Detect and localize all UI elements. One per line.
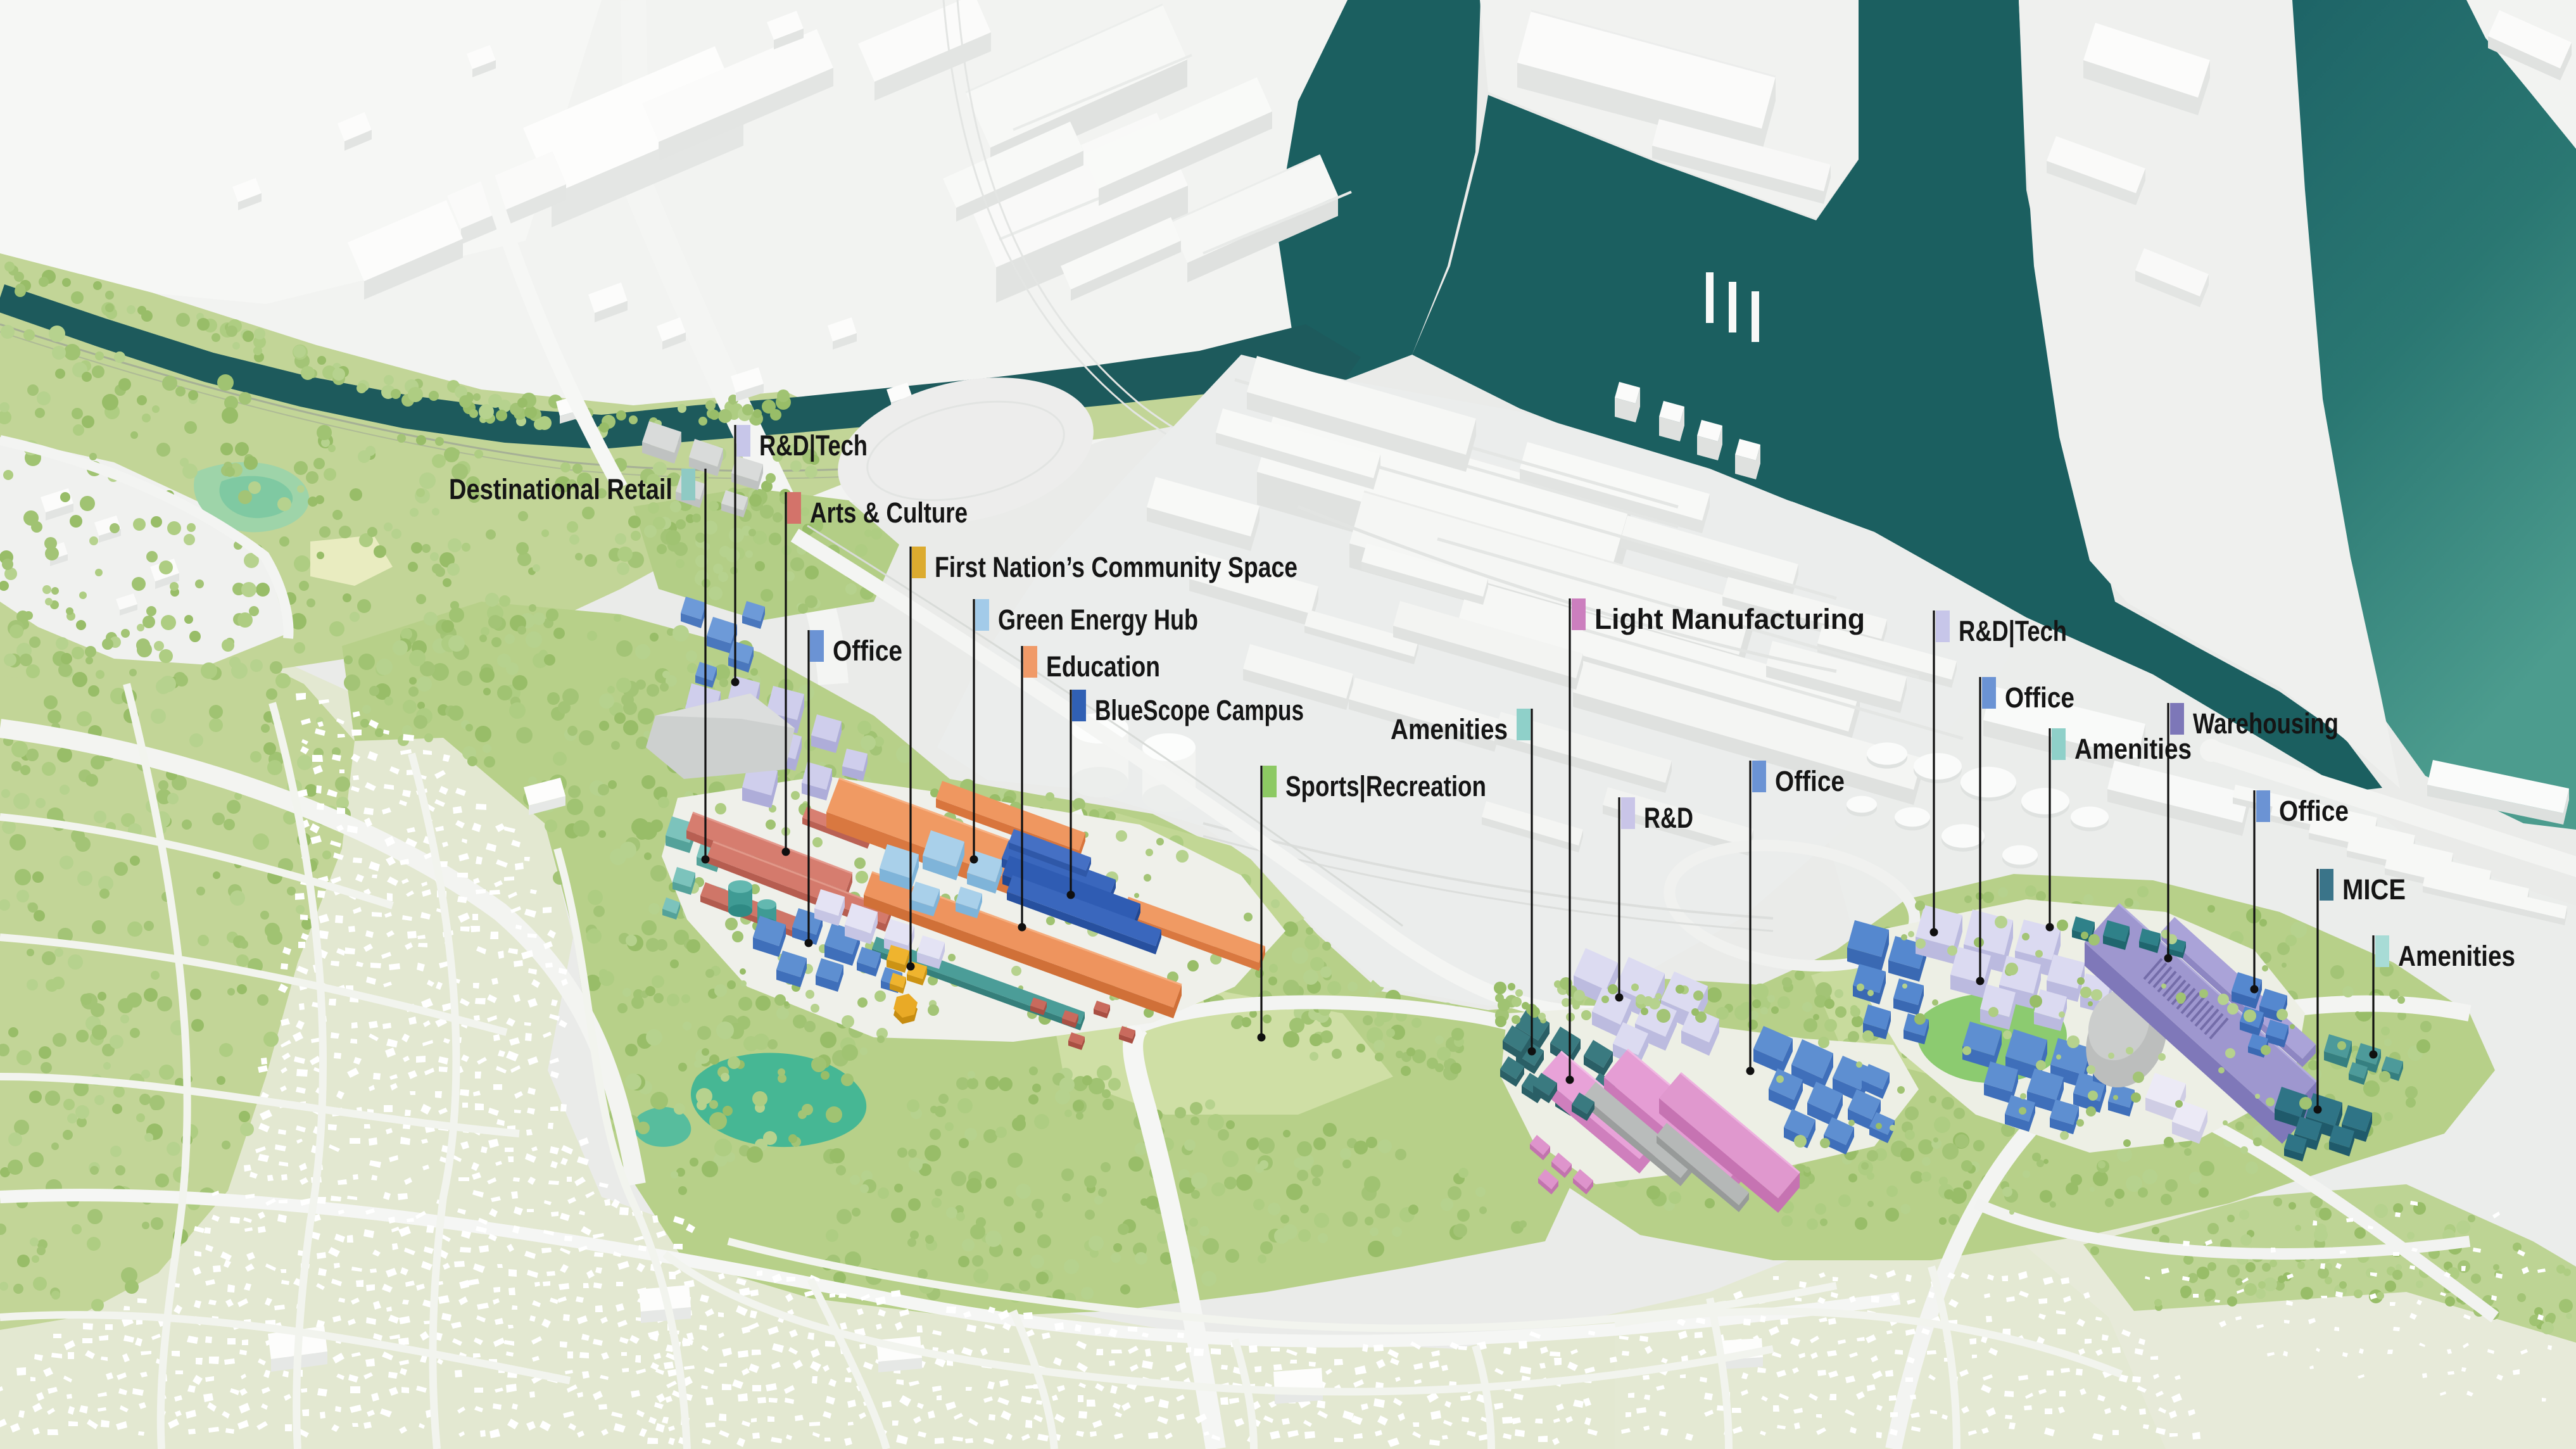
svg-text:Amenities: Amenities	[1391, 713, 1508, 745]
svg-text:Warehousing: Warehousing	[2193, 707, 2339, 740]
svg-text:Destinational Retail: Destinational Retail	[449, 473, 672, 505]
svg-text:Amenities: Amenities	[2398, 940, 2515, 972]
svg-text:R&D|Tech: R&D|Tech	[759, 429, 868, 462]
svg-text:Arts & Culture: Arts & Culture	[810, 497, 968, 529]
svg-text:MICE: MICE	[2342, 873, 2406, 906]
svg-text:First Nation’s Community Space: First Nation’s Community Space	[935, 551, 1297, 583]
svg-text:Office: Office	[2005, 681, 2074, 714]
svg-text:Green Energy Hub: Green Energy Hub	[998, 604, 1198, 636]
svg-text:Education: Education	[1046, 650, 1160, 683]
svg-text:Office: Office	[2279, 795, 2349, 827]
svg-text:R&D|Tech: R&D|Tech	[1959, 615, 2067, 648]
svg-text:R&D: R&D	[1644, 802, 1693, 834]
svg-text:Amenities: Amenities	[2074, 733, 2192, 765]
svg-text:BlueScope Campus: BlueScope Campus	[1095, 694, 1304, 726]
svg-text:Light Manufacturing: Light Manufacturing	[1594, 603, 1865, 635]
svg-text:Office: Office	[1775, 765, 1845, 797]
svg-text:Office: Office	[833, 635, 902, 667]
svg-text:Sports|Recreation: Sports|Recreation	[1285, 770, 1486, 803]
